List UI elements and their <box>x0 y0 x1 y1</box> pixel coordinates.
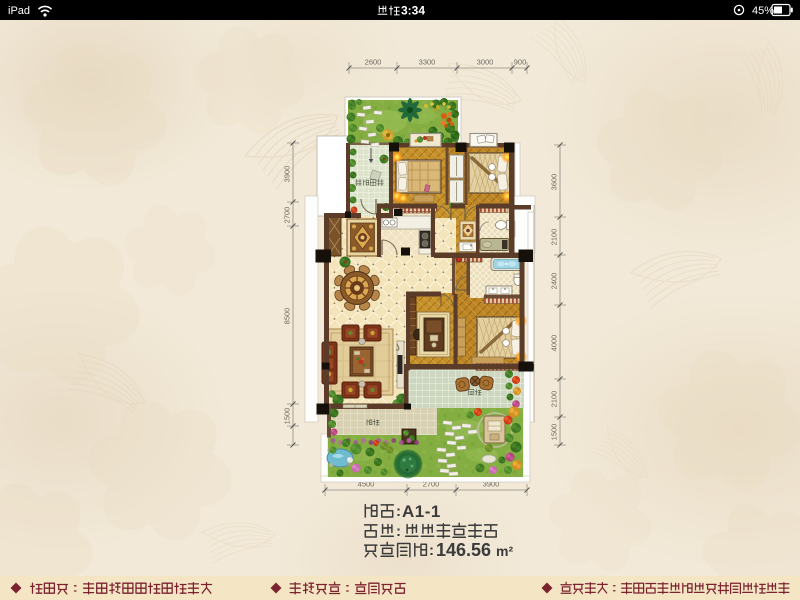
svg-text:3:34: 3:34 <box>401 4 425 18</box>
svg-text:1500: 1500 <box>550 424 559 441</box>
svg-text:8500: 8500 <box>283 308 292 325</box>
svg-text:2400: 2400 <box>550 273 559 290</box>
svg-text:m²: m² <box>496 543 513 559</box>
svg-text:iPad: iPad <box>8 5 30 17</box>
svg-text:2100: 2100 <box>550 229 559 246</box>
svg-text::: : <box>429 542 434 559</box>
svg-text:3000: 3000 <box>477 58 494 67</box>
svg-text:2700: 2700 <box>283 207 292 224</box>
svg-text::: : <box>396 503 401 520</box>
svg-text:4000: 4000 <box>550 335 559 352</box>
svg-text:3300: 3300 <box>419 58 436 67</box>
svg-text:146.56: 146.56 <box>436 540 491 560</box>
svg-text:45%: 45% <box>752 5 774 17</box>
svg-text:1500: 1500 <box>283 408 292 425</box>
svg-text::: : <box>396 523 401 540</box>
svg-text:2100: 2100 <box>550 391 559 408</box>
svg-text:2600: 2600 <box>365 58 382 67</box>
svg-text:A1-1: A1-1 <box>402 502 441 521</box>
svg-text:3600: 3600 <box>550 174 559 191</box>
svg-text:3900: 3900 <box>283 166 292 183</box>
svg-text:900: 900 <box>514 58 527 67</box>
